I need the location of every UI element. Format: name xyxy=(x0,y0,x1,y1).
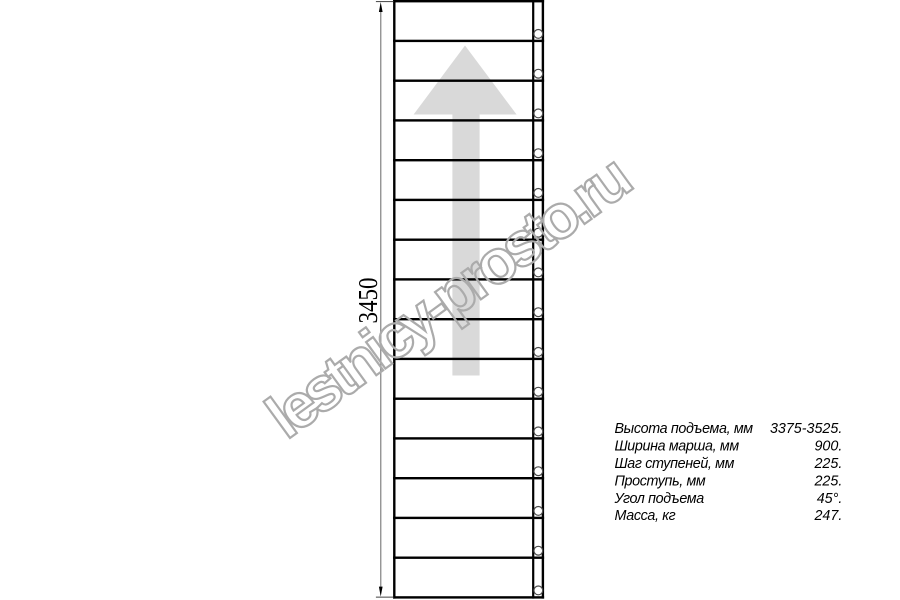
svg-text:Шаг ступеней, мм: Шаг ступеней, мм xyxy=(615,456,735,472)
svg-text:247.: 247. xyxy=(813,508,842,524)
svg-text:Проступь, мм: Проступь, мм xyxy=(615,473,706,489)
svg-text:Ширина марша, мм: Ширина марша, мм xyxy=(615,438,740,454)
svg-text:Масса, кг: Масса, кг xyxy=(615,508,676,524)
svg-text:900.: 900. xyxy=(814,438,842,454)
svg-text:225.: 225. xyxy=(813,473,842,489)
svg-text:Угол подъема: Угол подъема xyxy=(614,491,705,507)
svg-text:225.: 225. xyxy=(813,456,842,472)
svg-text:45°.: 45°. xyxy=(817,491,843,507)
svg-text:Высота подъема, мм: Высота подъема, мм xyxy=(615,421,754,437)
svg-text:3375-3525.: 3375-3525. xyxy=(770,421,842,437)
